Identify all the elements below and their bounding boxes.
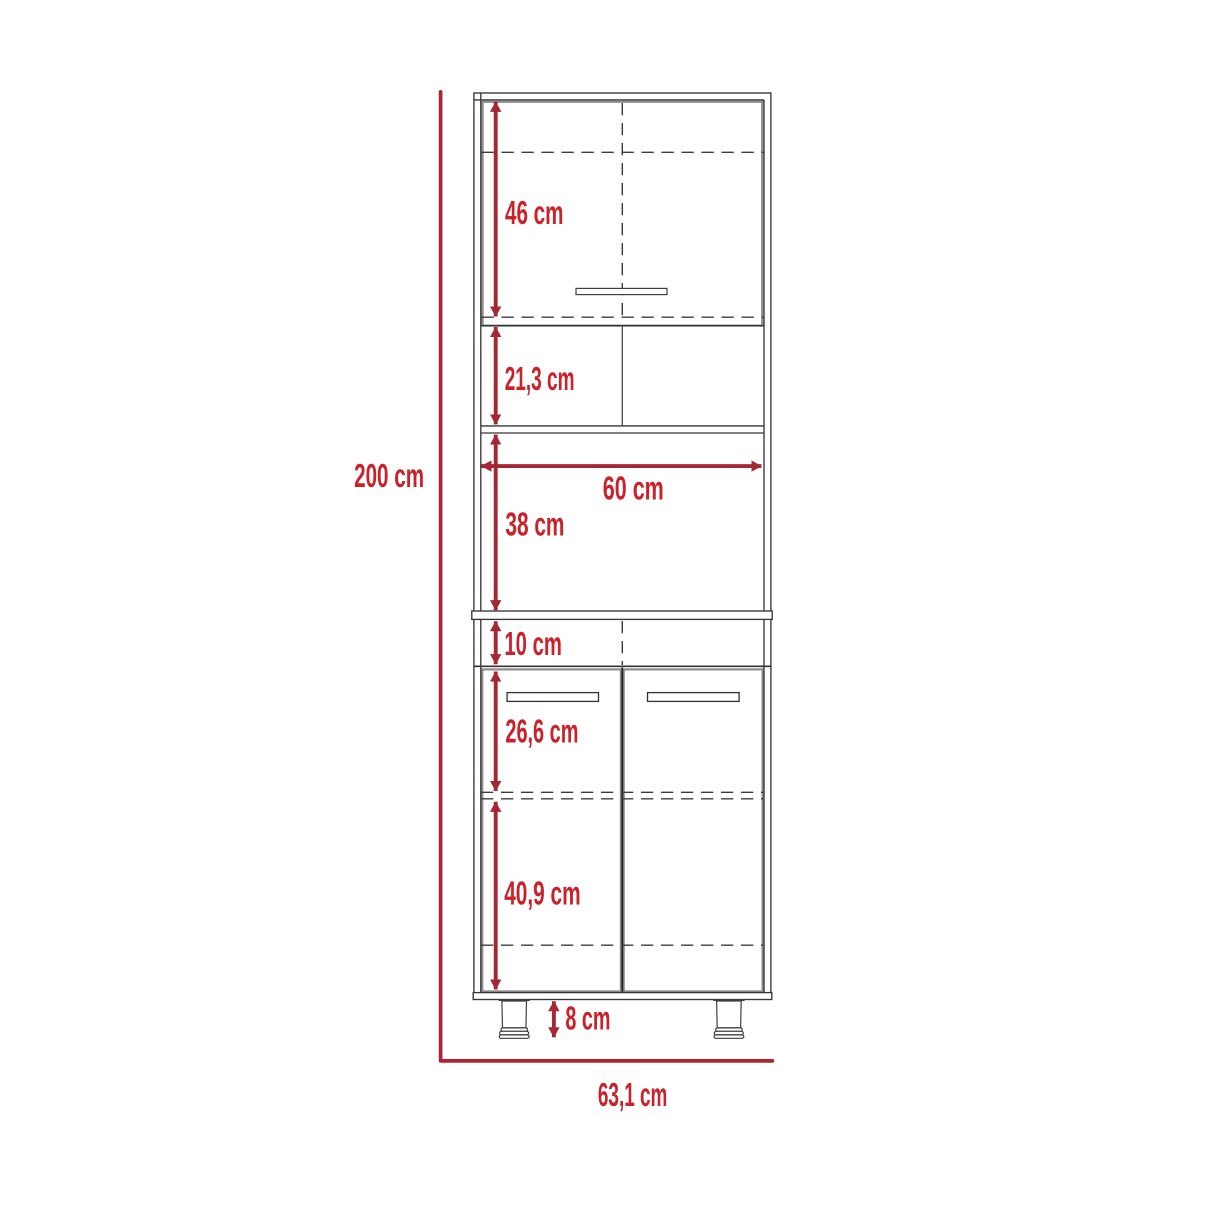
- svg-text:38 cm: 38 cm: [505, 505, 564, 542]
- svg-text:26,6 cm: 26,6 cm: [505, 713, 578, 750]
- svg-text:8 cm: 8 cm: [565, 1000, 610, 1037]
- svg-text:40,9 cm: 40,9 cm: [504, 874, 581, 911]
- svg-text:63,1 cm: 63,1 cm: [598, 1076, 668, 1113]
- svg-text:21,3 cm: 21,3 cm: [505, 360, 575, 397]
- svg-text:200 cm: 200 cm: [354, 457, 424, 494]
- svg-text:60 cm: 60 cm: [603, 470, 664, 507]
- svg-text:10 cm: 10 cm: [504, 625, 562, 662]
- svg-text:46 cm: 46 cm: [505, 194, 564, 231]
